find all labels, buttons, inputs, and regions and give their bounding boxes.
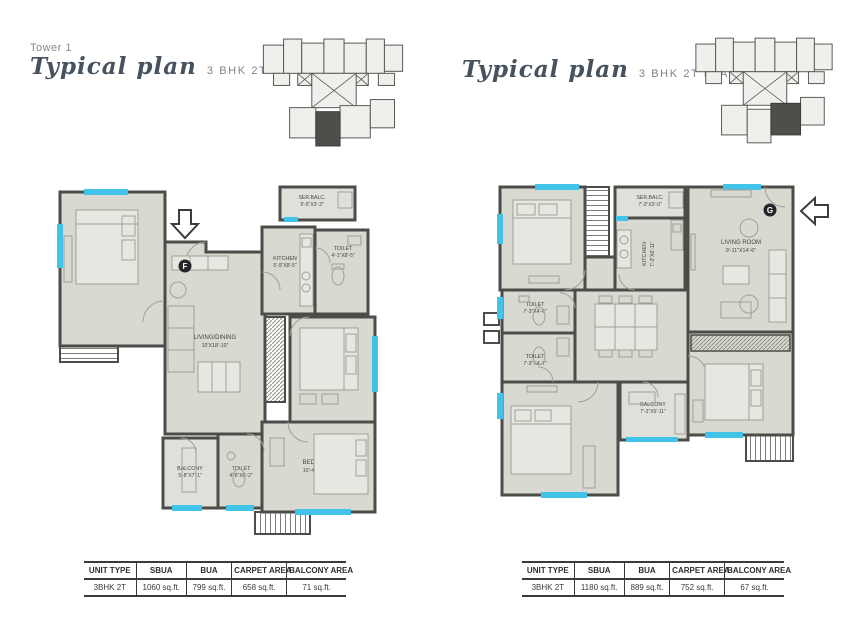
balcony-dims: 7'-3"X5'-11": [640, 409, 666, 415]
room-toilet-1: TOILET 7'-3"X4'-6": [502, 290, 575, 333]
living-dining-label: LIVING/DINING: [194, 335, 237, 341]
key-plan-footprint: [263, 39, 402, 146]
key-plan-g-highlight: [771, 103, 801, 135]
col-sbua: SBUA: [136, 562, 186, 579]
floor-plan-g: BEDROOM 11'-1"X10' SER.BALC. 7'-3"X3'-0"…: [483, 178, 837, 528]
stairs-hatch-top: [585, 187, 609, 257]
floor-plan-g-svg: BEDROOM 11'-1"X10' SER.BALC. 7'-3"X3'-0"…: [483, 178, 837, 523]
key-plan-g-svg: [686, 30, 844, 148]
key-plan-f-highlight: [316, 112, 340, 146]
col-sbua: SBUA: [574, 562, 624, 579]
toilet-1-label: TOILET: [526, 302, 545, 308]
unit-marker-g-letter: G: [767, 206, 773, 215]
ser-balc-label: SER.BALC.: [636, 195, 663, 201]
balcony-area-value: 67 sq.ft.: [725, 579, 784, 596]
carpet-area-value: 658 sq.ft.: [232, 579, 287, 596]
toilet-top-label: TOILET: [334, 246, 353, 252]
bua-value: 889 sq.ft.: [624, 579, 669, 596]
toilet-top-dims: 4'-1"X8'-5": [331, 253, 354, 259]
kitchen-dims: 7'-3"X6'-11": [650, 241, 656, 267]
col-bua: BUA: [186, 562, 231, 579]
unit-marker-g: G: [764, 204, 777, 217]
flat-g-script-title: Typical plan: [462, 58, 629, 81]
balcony-area-value: 71 sq.ft.: [287, 579, 346, 596]
sbua-value: 1060 sq.ft.: [136, 579, 186, 596]
room-living-dining: LIVING/DINING 10'X18'-10": [165, 242, 265, 434]
entry-arrow-f: [172, 210, 198, 238]
living-dining-dims: 10'X18'-10": [202, 343, 229, 349]
balcony-label: BALCONY: [640, 402, 666, 408]
unit-type-value: 3BHK 2T: [522, 579, 574, 596]
stairs-hatch: [255, 512, 310, 534]
duct-marker: [484, 313, 499, 343]
room-toilet-bottom: TOILET 4'-6"X6'-2": [218, 434, 265, 508]
wardrobe-hatch: [691, 335, 790, 351]
foyer-floor: [585, 257, 615, 290]
living-label: LIVING ROOM: [721, 240, 761, 246]
flat-f-script-title: Typical plan: [30, 55, 197, 78]
kitchen-dims: 5'-9"X8'-5": [273, 263, 296, 269]
area-table-f: UNIT TYPE SBUA BUA CARPET AREA BALCONY A…: [84, 561, 346, 597]
col-balcony-area: BALCONY AREA: [725, 562, 784, 579]
floor-plan-f-svg: LIVING/DINING 10'X18'-10" BEDROOM 9'-11"…: [48, 176, 398, 536]
stairs-hatch-bottom: [746, 435, 793, 461]
balcony-label: BALCONY: [177, 466, 203, 472]
ser-balc-label: SER.BALC.: [298, 195, 325, 201]
ledge-hatch: [60, 346, 118, 362]
ser-balc-dims: 9'-5"X3'-3": [300, 202, 323, 208]
room-toilet-2: TOILET 7'-3"X4'-7": [502, 333, 575, 382]
unit-type-value: 3BHK 2T: [84, 579, 136, 596]
unit-marker-f-letter: F: [183, 262, 188, 271]
col-unit-type: UNIT TYPE: [84, 562, 136, 579]
key-plan-footprint: [696, 38, 832, 143]
col-carpet-area: CARPET AREA: [670, 562, 725, 579]
table-row: 3BHK 2T 1180 sq.ft. 889 sq.ft. 752 sq.ft…: [522, 579, 784, 596]
key-plan-f: [253, 33, 415, 154]
brochure-page: { "plans": [ { "tower": "Tower 1", "titl…: [0, 0, 867, 621]
room-balcony: BALCONY 7'-3"X5'-11": [620, 382, 688, 440]
col-bua: BUA: [624, 562, 669, 579]
kitchen-label: KITCHEN: [273, 256, 297, 262]
col-unit-type: UNIT TYPE: [522, 562, 574, 579]
sbua-value: 1180 sq.ft.: [574, 579, 624, 596]
room-toilet-top: TOILET 4'-1"X8'-5": [315, 230, 368, 314]
unit-marker-f: F: [179, 260, 192, 273]
carpet-area-value: 752 sq.ft.: [670, 579, 725, 596]
area-table-g: UNIT TYPE SBUA BUA CARPET AREA BALCONY A…: [522, 561, 784, 597]
floor-plan-f: LIVING/DINING 10'X18'-10" BEDROOM 9'-11"…: [48, 176, 398, 541]
toilet-2-label: TOILET: [526, 354, 545, 360]
bua-value: 799 sq.ft.: [186, 579, 231, 596]
col-carpet-area: CARPET AREA: [232, 562, 287, 579]
key-plan-g: [686, 30, 844, 153]
ser-balc-dims: 7'-3"X3'-0": [638, 202, 661, 208]
living-dims: 9'-11"X14'-6": [726, 248, 756, 254]
key-plan-f-svg: [253, 33, 415, 149]
table-row: 3BHK 2T 1060 sq.ft. 799 sq.ft. 658 sq.ft…: [84, 579, 346, 596]
entry-arrow-g: [801, 198, 828, 224]
shaft-hatch: [265, 317, 285, 402]
col-balcony-area: BALCONY AREA: [287, 562, 346, 579]
kitchen-label: KITCHEN: [642, 242, 648, 266]
